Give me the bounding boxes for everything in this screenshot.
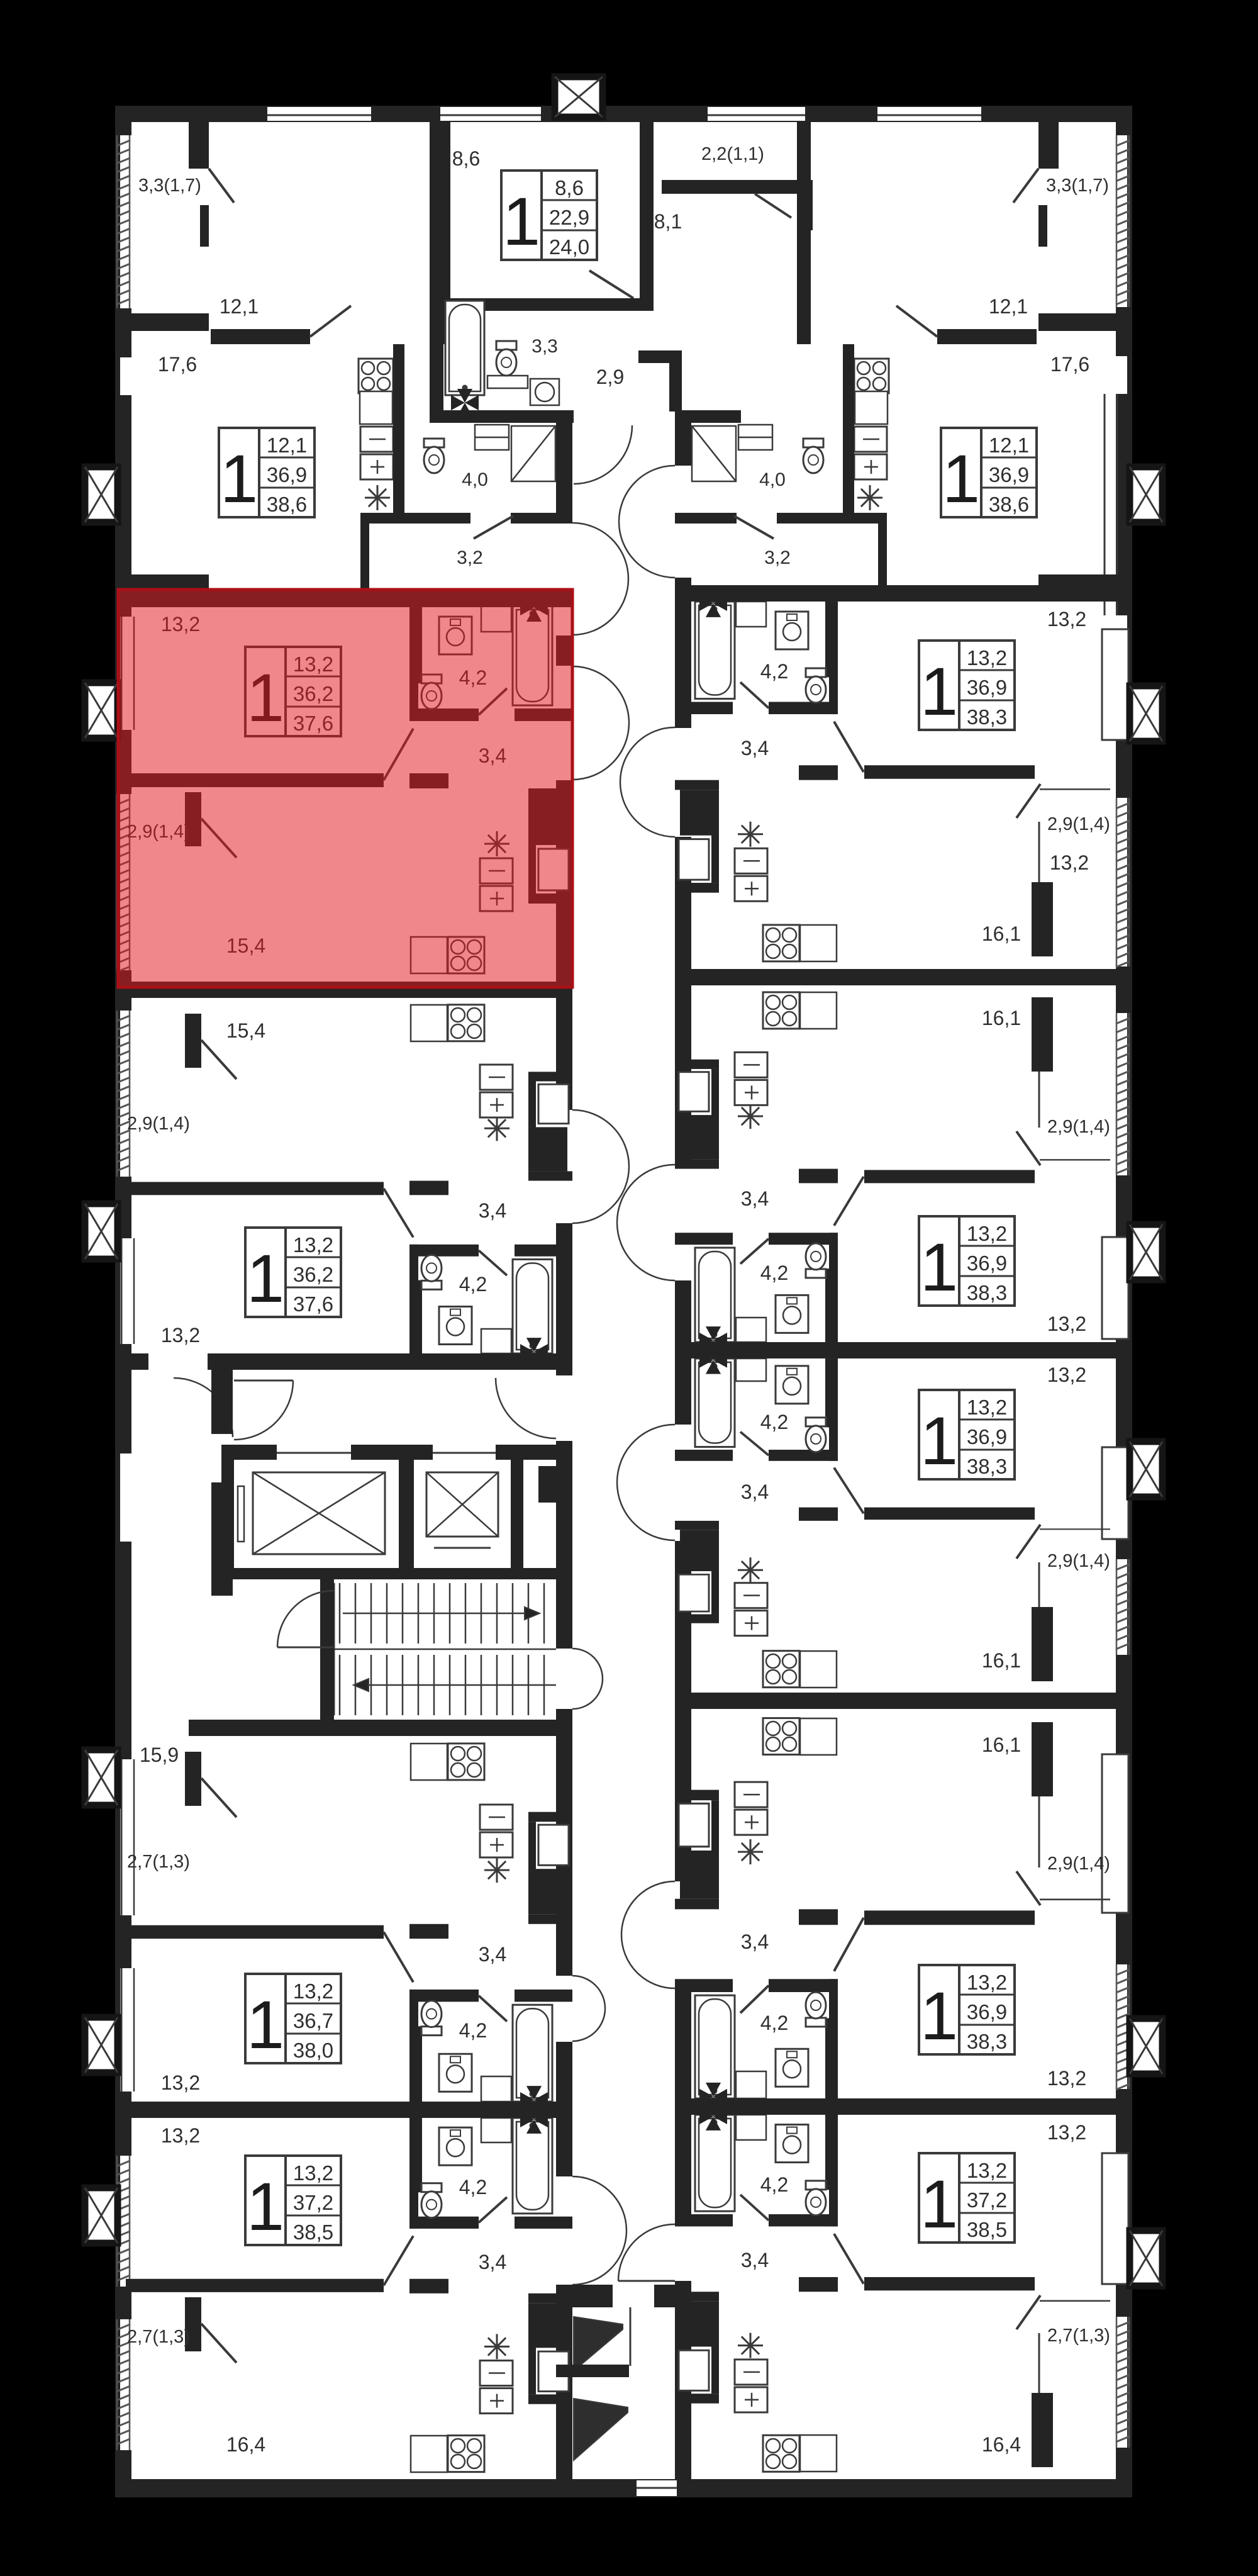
svg-text:36,9: 36,9 (967, 676, 1007, 699)
svg-text:38,6: 38,6 (267, 493, 307, 516)
svg-text:13,2: 13,2 (967, 646, 1007, 669)
svg-text:3,4: 3,4 (741, 1481, 769, 1503)
svg-text:4,2: 4,2 (760, 1262, 788, 1284)
svg-text:37,6: 37,6 (293, 1292, 333, 1316)
svg-text:3,2: 3,2 (764, 547, 791, 568)
svg-text:1: 1 (920, 1403, 958, 1479)
svg-text:1: 1 (247, 1240, 284, 1316)
svg-text:36,2: 36,2 (293, 1263, 333, 1286)
svg-text:13,2: 13,2 (1050, 851, 1089, 874)
svg-text:1: 1 (942, 440, 980, 517)
svg-text:36,9: 36,9 (267, 463, 307, 486)
svg-text:37,2: 37,2 (967, 2188, 1007, 2212)
svg-text:12,1: 12,1 (220, 295, 259, 318)
svg-text:17,6: 17,6 (158, 353, 197, 376)
svg-text:8,1: 8,1 (654, 210, 682, 233)
svg-text:13,2: 13,2 (161, 1324, 200, 1347)
svg-text:2,9(1,4): 2,9(1,4) (1047, 814, 1110, 834)
svg-text:2,9(1,4): 2,9(1,4) (1047, 1117, 1110, 1137)
svg-text:12,1: 12,1 (267, 434, 307, 457)
svg-text:4,0: 4,0 (759, 469, 786, 490)
svg-text:1: 1 (920, 2166, 958, 2242)
svg-text:8,6: 8,6 (452, 147, 480, 170)
svg-text:1: 1 (920, 653, 958, 729)
svg-text:38,5: 38,5 (967, 2218, 1007, 2241)
svg-text:13,2: 13,2 (1047, 1313, 1086, 1335)
svg-text:38,3: 38,3 (967, 1455, 1007, 1478)
svg-text:13,2: 13,2 (967, 1971, 1007, 1994)
svg-text:36,9: 36,9 (967, 1425, 1007, 1448)
svg-text:1: 1 (247, 1986, 284, 2063)
svg-text:13,2: 13,2 (293, 1233, 333, 1257)
svg-text:13,2: 13,2 (1047, 2067, 1086, 2090)
svg-text:3,2: 3,2 (457, 547, 483, 568)
svg-text:3,4: 3,4 (741, 1187, 769, 1210)
svg-text:16,4: 16,4 (982, 2433, 1021, 2456)
svg-text:4,2: 4,2 (760, 1411, 788, 1433)
svg-text:36,9: 36,9 (967, 2000, 1007, 2024)
svg-text:13,2: 13,2 (967, 1396, 1007, 1419)
svg-text:15,9: 15,9 (140, 1744, 179, 1766)
svg-text:13,2: 13,2 (161, 2071, 200, 2094)
svg-text:4,2: 4,2 (459, 2176, 487, 2198)
svg-text:38,0: 38,0 (293, 2039, 333, 2062)
svg-text:24,0: 24,0 (549, 235, 589, 259)
svg-text:36,9: 36,9 (967, 1252, 1007, 1275)
svg-text:2,9(1,4): 2,9(1,4) (1047, 1854, 1110, 1874)
svg-text:3,4: 3,4 (741, 1930, 769, 1953)
svg-text:13,2: 13,2 (967, 1222, 1007, 1245)
svg-text:16,4: 16,4 (226, 2433, 265, 2456)
svg-text:2,7(1,3): 2,7(1,3) (127, 2327, 190, 2347)
svg-text:22,9: 22,9 (549, 206, 589, 229)
svg-text:2,7(1,3): 2,7(1,3) (127, 1852, 190, 1872)
svg-text:37,2: 37,2 (293, 2191, 333, 2214)
svg-text:38,3: 38,3 (967, 1281, 1007, 1304)
svg-text:2,9(1,4): 2,9(1,4) (127, 1114, 190, 1134)
svg-text:38,3: 38,3 (967, 705, 1007, 729)
svg-text:4,2: 4,2 (459, 2019, 487, 2042)
svg-text:1: 1 (920, 1978, 958, 2054)
svg-text:38,3: 38,3 (967, 2030, 1007, 2053)
svg-text:13,2: 13,2 (293, 1980, 333, 2003)
svg-text:2,2(1,1): 2,2(1,1) (701, 144, 764, 164)
svg-text:36,7: 36,7 (293, 2009, 333, 2032)
svg-text:16,1: 16,1 (982, 922, 1021, 945)
svg-text:3,4: 3,4 (479, 1199, 506, 1222)
svg-text:2,9(1,4): 2,9(1,4) (1047, 1551, 1110, 1571)
svg-text:1: 1 (920, 1229, 958, 1305)
svg-text:13,2: 13,2 (161, 2124, 200, 2147)
svg-text:4,2: 4,2 (760, 2173, 788, 2196)
svg-text:1: 1 (503, 183, 540, 259)
svg-text:2,9: 2,9 (596, 366, 624, 388)
svg-text:3,3: 3,3 (532, 336, 558, 357)
svg-text:36,9: 36,9 (989, 463, 1029, 486)
svg-text:38,6: 38,6 (989, 493, 1029, 516)
svg-text:3,3(1,7): 3,3(1,7) (1046, 176, 1109, 196)
svg-text:12,1: 12,1 (989, 434, 1029, 457)
svg-text:17,6: 17,6 (1050, 353, 1089, 376)
svg-text:4,2: 4,2 (459, 1273, 487, 1296)
svg-text:1: 1 (247, 2168, 284, 2244)
svg-text:13,2: 13,2 (967, 2159, 1007, 2182)
svg-text:3,4: 3,4 (479, 1943, 506, 1966)
svg-text:15,4: 15,4 (226, 1019, 265, 1042)
svg-text:4,2: 4,2 (760, 660, 788, 683)
svg-text:2,7(1,3): 2,7(1,3) (1047, 2326, 1110, 2346)
svg-text:16,1: 16,1 (982, 1007, 1021, 1029)
svg-text:13,2: 13,2 (293, 2161, 333, 2185)
svg-text:3,3(1,7): 3,3(1,7) (138, 176, 201, 196)
svg-text:16,1: 16,1 (982, 1733, 1021, 1756)
svg-text:3,4: 3,4 (741, 737, 769, 759)
svg-text:3,4: 3,4 (479, 2251, 506, 2273)
svg-text:38,5: 38,5 (293, 2220, 333, 2244)
svg-text:13,2: 13,2 (1047, 2121, 1086, 2144)
svg-text:8,6: 8,6 (555, 176, 584, 199)
svg-text:12,1: 12,1 (989, 295, 1028, 318)
svg-text:1: 1 (220, 440, 258, 517)
svg-text:13,2: 13,2 (1047, 1364, 1086, 1386)
svg-text:13,2: 13,2 (1047, 608, 1086, 630)
svg-text:3,4: 3,4 (741, 2249, 769, 2271)
svg-text:4,0: 4,0 (462, 469, 488, 490)
svg-text:16,1: 16,1 (982, 1649, 1021, 1672)
svg-text:4,2: 4,2 (760, 2012, 788, 2034)
